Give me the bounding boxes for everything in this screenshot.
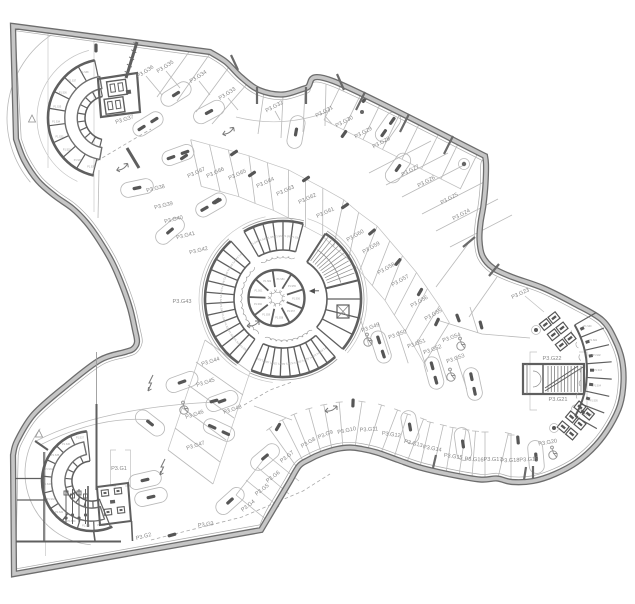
svg-text:P1.S54: P1.S54 — [277, 278, 286, 281]
svg-text:P1.S31: P1.S31 — [55, 511, 64, 514]
svg-text:P1.S55: P1.S55 — [288, 285, 297, 288]
svg-text:P3.G43: P3.G43 — [173, 299, 192, 305]
svg-text:P3.G22: P3.G22 — [543, 356, 562, 362]
svg-text:P1.S32: P1.S32 — [63, 148, 72, 151]
svg-text:P1.S03: P1.S03 — [594, 369, 603, 372]
svg-text:P1.S37: P1.S37 — [76, 437, 85, 440]
svg-text:P1.S58: P1.S58 — [275, 316, 284, 319]
svg-text:P1.S34: P1.S34 — [52, 121, 61, 124]
svg-text:P1.S35: P1.S35 — [51, 454, 60, 457]
svg-text:P1.S36: P1.S36 — [62, 443, 71, 446]
svg-text:P1.S62: P1.S62 — [263, 280, 272, 283]
svg-text:P1.S42: P1.S42 — [219, 295, 223, 304]
svg-text:P3.G18: P3.G18 — [500, 458, 519, 465]
svg-text:P1.S30: P1.S30 — [87, 166, 96, 169]
svg-text:P3.G16: P3.G16 — [464, 457, 483, 464]
svg-text:P1.S05: P1.S05 — [590, 399, 599, 402]
svg-text:P1.S34: P1.S34 — [45, 468, 54, 471]
svg-text:P1.S31: P1.S31 — [74, 159, 83, 162]
svg-text:P1.S30: P1.S30 — [67, 520, 76, 523]
svg-text:P1.S32: P1.S32 — [47, 498, 56, 501]
svg-text:P1.S33: P1.S33 — [55, 135, 64, 138]
svg-text:P1.S38: P1.S38 — [81, 71, 90, 74]
svg-text:P1.S36: P1.S36 — [59, 92, 68, 95]
svg-text:P1.S35: P1.S35 — [53, 106, 62, 109]
svg-text:P1.S61: P1.S61 — [254, 290, 263, 293]
svg-text:P1.S60: P1.S60 — [254, 303, 263, 306]
svg-text:P1.S00: P1.S00 — [584, 325, 593, 328]
svg-text:P1.S56: P1.S56 — [292, 298, 301, 301]
svg-text:P1.S57: P1.S57 — [287, 310, 296, 313]
svg-text:P3.G21: P3.G21 — [549, 397, 568, 403]
svg-text:P1.S01: P1.S01 — [589, 339, 598, 342]
svg-text:P1.S04: P1.S04 — [593, 384, 602, 387]
svg-text:P1.S59: P1.S59 — [262, 314, 271, 317]
svg-text:P1.S37: P1.S37 — [68, 80, 77, 83]
svg-text:P1.S02: P1.S02 — [593, 354, 602, 357]
svg-text:P3.G1: P3.G1 — [111, 466, 127, 472]
svg-text:P1.S29: P1.S29 — [82, 525, 91, 528]
